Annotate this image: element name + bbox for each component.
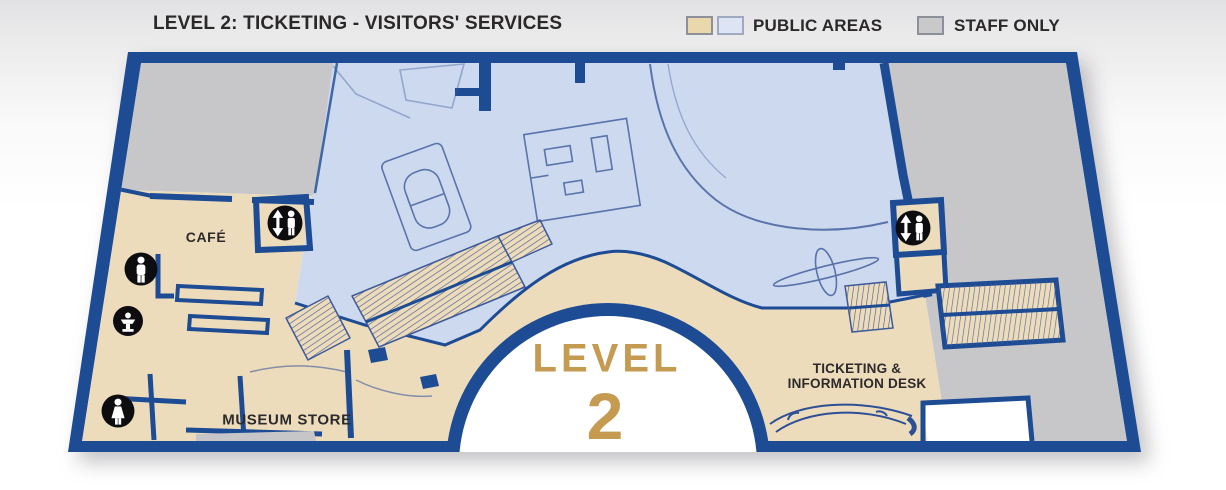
museum-store-label: MUSEUM STORE — [222, 412, 351, 429]
staff-only-swatch — [917, 16, 945, 36]
staff-area-top-left — [120, 63, 337, 196]
elevator-icon-cafe — [267, 205, 304, 242]
drinking-fountain-icon — [113, 306, 144, 337]
public-areas-swatches — [686, 16, 744, 36]
level-word-label: LEVEL — [533, 337, 682, 382]
ticketing-line1: TICKETING & — [788, 361, 927, 376]
legend-staff-only: STAFF ONLY — [917, 16, 1060, 36]
restroom-women-icon — [101, 394, 135, 428]
legend-staff-label: STAFF ONLY — [954, 16, 1060, 36]
ticketing-desk-label: TICKETING & INFORMATION DESK — [788, 361, 927, 391]
bottom-right-opening — [923, 398, 1032, 441]
ticketing-line2: INFORMATION DESK — [788, 376, 927, 391]
restroom-men-icon — [124, 252, 158, 286]
stair-right-exhibit — [845, 282, 893, 332]
elevator-icon-right — [895, 210, 932, 247]
cafe-label: CAFÉ — [186, 229, 227, 245]
floorplan-page: LEVEL 2: TICKETING - VISITORS' SERVICES … — [0, 0, 1226, 490]
legend-public-areas: PUBLIC AREAS — [686, 16, 882, 36]
legend-public-label: PUBLIC AREAS — [753, 16, 882, 36]
page-title: LEVEL 2: TICKETING - VISITORS' SERVICES — [153, 13, 562, 35]
level-number-label: 2 — [587, 378, 624, 454]
